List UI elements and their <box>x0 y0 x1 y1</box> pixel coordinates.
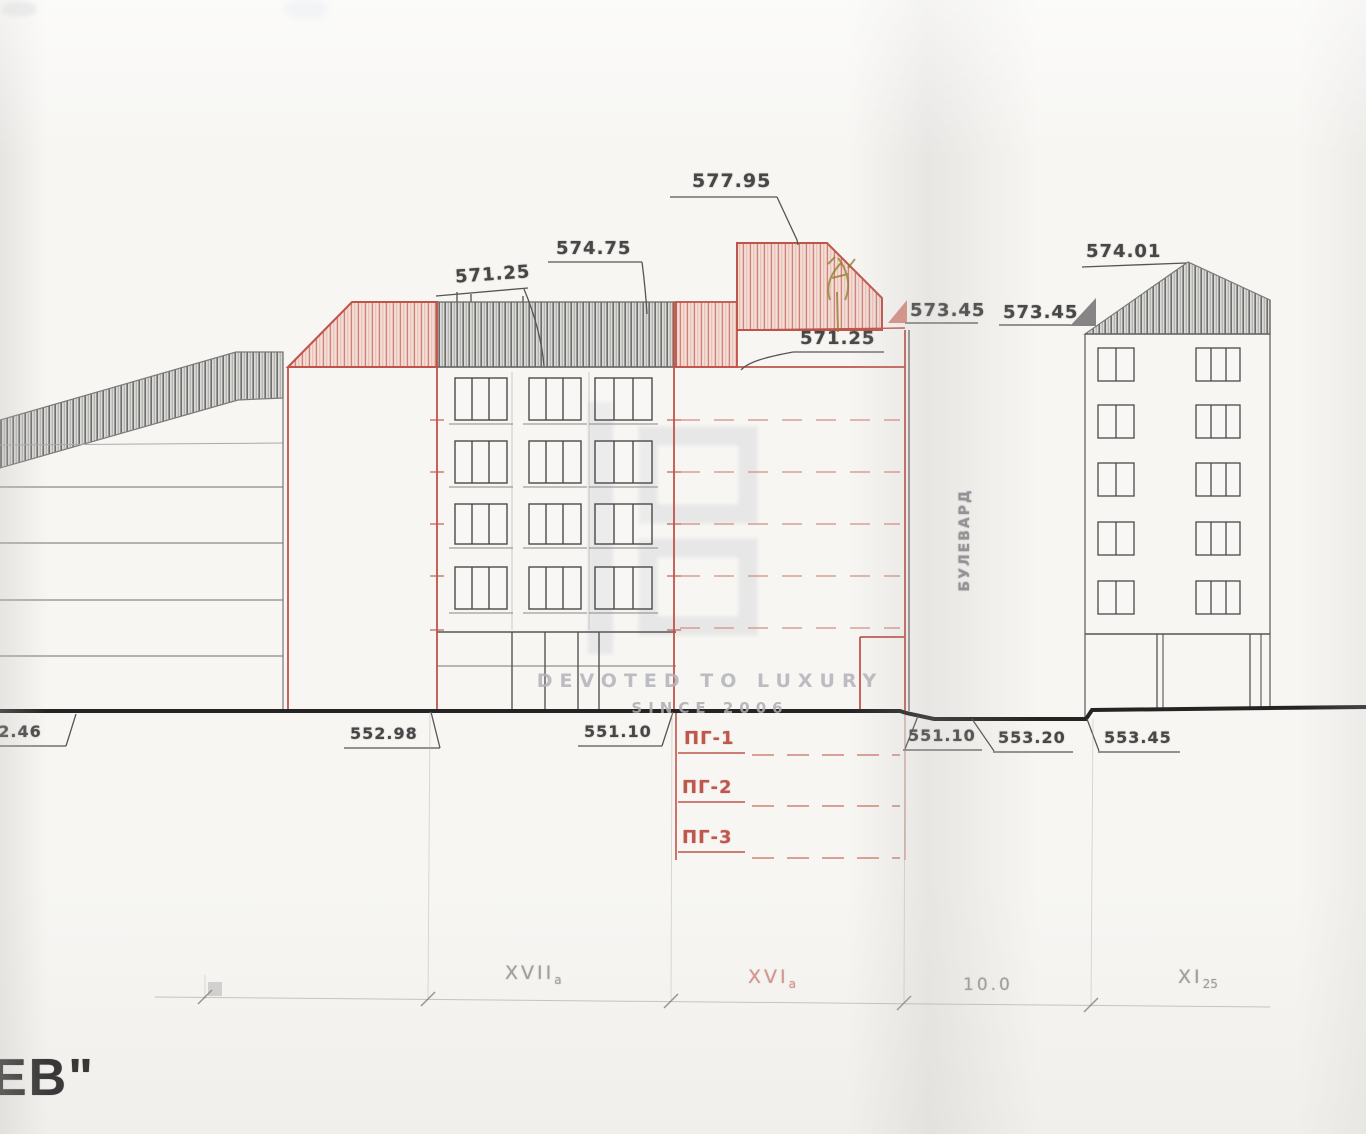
ground-label-3: 551.10 <box>584 722 652 741</box>
center-building-windows <box>455 378 652 609</box>
ground-label-5: 553.20 <box>998 728 1066 747</box>
elevation-label-roof-right: 574.01 <box>1086 241 1161 262</box>
elevation-label-parapet-a: 573.45 <box>910 300 985 321</box>
ground-label-4: 551.10 <box>908 726 976 745</box>
axis-xvi-sub: а <box>789 977 796 991</box>
level-marker-triangle-red <box>888 300 907 323</box>
watermark-line1: DEVOTED TO LUXURY <box>520 670 900 692</box>
axis-xvi-main: XVI <box>748 966 789 988</box>
axis-label-xvi: XVIа <box>748 966 796 991</box>
watermark-line2: SINCE 2006 <box>520 699 900 717</box>
scanned-elevation-drawing: 577.95 574.75 571.25 571.25 573.45 573.4… <box>0 0 1366 1134</box>
elevation-label-roof-top: 577.95 <box>692 170 771 192</box>
elevation-label-terrace: 571.25 <box>800 328 875 349</box>
elevation-linework <box>0 0 1366 1134</box>
right-ground-floor <box>1085 634 1270 708</box>
garage-level-2-label: ПГ-2 <box>682 777 733 798</box>
axis-label-xi: XI25 <box>1178 966 1218 991</box>
ground-label-1: 552.46 <box>0 722 42 741</box>
proposed-floor-lines <box>680 420 900 628</box>
axis-xi-main: XI <box>1178 966 1203 988</box>
axis-label-xvii: XVIIа <box>505 962 562 987</box>
right-building <box>1085 262 1270 719</box>
axis-xvii-sub: а <box>554 973 561 987</box>
dimension-line <box>155 712 1270 1012</box>
ground-label-2: 552.98 <box>350 724 418 743</box>
garage-level-1-label: ПГ-1 <box>684 728 735 749</box>
elevation-label-parapet-b: 573.45 <box>1003 302 1078 323</box>
new-building-left-section <box>288 302 437 711</box>
axis-xvii-main: XVII <box>505 962 554 984</box>
axis-xi-sub: 25 <box>1203 977 1218 991</box>
axis-label-width: 10.0 <box>963 975 1013 995</box>
drawing-title-fragment: ЕВ" <box>0 1048 95 1108</box>
garage-level-3-label: ПГ-3 <box>682 827 733 848</box>
left-building <box>0 352 283 711</box>
right-building-windows <box>1098 348 1240 614</box>
street-name-vertical-label: БУЛЕВАРД <box>957 465 975 615</box>
ground-label-6: 553.45 <box>1104 728 1172 747</box>
elevation-label-roof-mid: 574.75 <box>556 238 631 259</box>
